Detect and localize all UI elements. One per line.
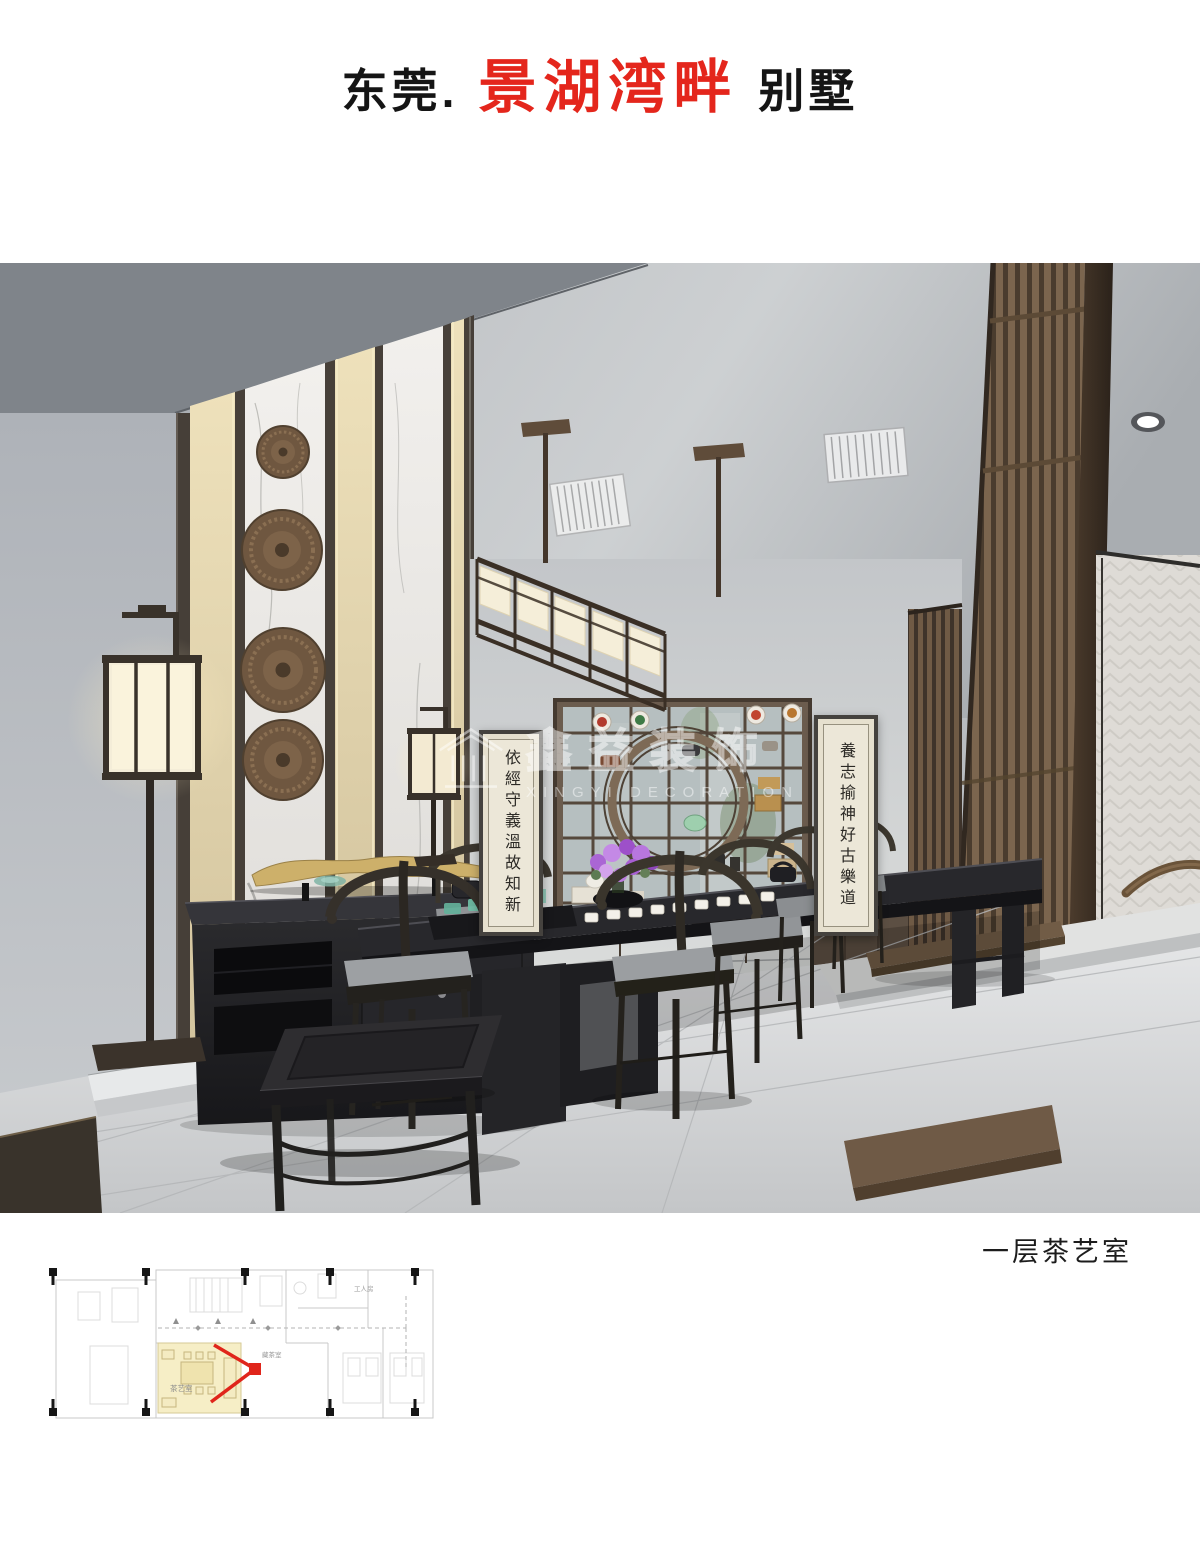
interior-render: 依經守義溫故知新 養志揄神好古樂道 鑫益装饰 XINGYI DECORATION bbox=[0, 263, 1200, 1213]
floorplan-walls bbox=[56, 1270, 433, 1418]
presentation-page: 东莞. 景湖湾畔 别墅 bbox=[0, 0, 1200, 1541]
render-artwork bbox=[0, 263, 1200, 1213]
path-nodes bbox=[173, 1318, 341, 1331]
calligraphy-scroll-left: 依經守義溫故知新 bbox=[479, 730, 543, 936]
page-title: 东莞. 景湖湾畔 别墅 bbox=[0, 40, 1200, 124]
room-label: 茶艺室 bbox=[170, 1383, 193, 1393]
calligraphy-text-left: 依經守義溫故知新 bbox=[503, 749, 519, 917]
calligraphy-text-right: 養志揄神好古樂道 bbox=[838, 742, 854, 910]
ac-vent bbox=[824, 428, 908, 483]
title-project-name: 景湖湾畔 bbox=[478, 40, 738, 124]
ac-vent bbox=[550, 474, 631, 536]
title-city: 东莞. bbox=[342, 55, 459, 121]
room-label: 藏茶室 bbox=[262, 1350, 282, 1359]
camera-position-marker bbox=[249, 1363, 261, 1375]
herringbone-wall bbox=[1096, 555, 1200, 927]
room-label: 工人房 bbox=[354, 1284, 374, 1293]
title-building-type: 别墅 bbox=[758, 55, 858, 121]
floor-plan: 茶艺室 藏茶室 工人房 bbox=[38, 1258, 448, 1473]
render-caption: 一层茶艺室 bbox=[982, 1230, 1132, 1269]
floorplan-furniture bbox=[78, 1274, 424, 1404]
floor-plan-drawing: 茶艺室 藏茶室 工人房 bbox=[38, 1258, 448, 1473]
calligraphy-scroll-right: 養志揄神好古樂道 bbox=[814, 715, 878, 936]
